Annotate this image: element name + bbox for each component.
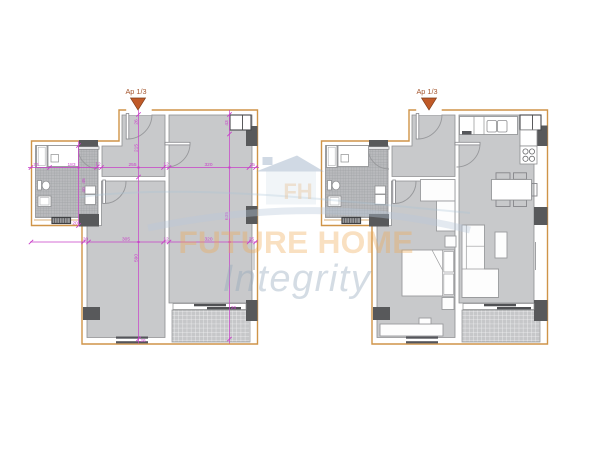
svg-text:26: 26 [133, 119, 139, 125]
svg-text:Ap 1/3: Ap 1/3 [416, 87, 437, 96]
svg-text:215: 215 [133, 144, 139, 152]
svg-text:43: 43 [224, 120, 230, 126]
svg-text:Integrity: Integrity [223, 258, 372, 300]
svg-text:255: 255 [128, 162, 136, 168]
svg-text:40: 40 [81, 187, 87, 193]
svg-text:FH: FH [283, 179, 312, 204]
svg-text:45: 45 [81, 178, 87, 184]
svg-text:26: 26 [231, 305, 237, 311]
svg-text:12: 12 [163, 236, 169, 242]
svg-text:305: 305 [122, 236, 130, 242]
svg-text:320: 320 [204, 162, 212, 168]
svg-text:FUTURE HOME: FUTURE HOME [178, 224, 413, 260]
svg-text:12: 12 [95, 161, 101, 167]
svg-text:73: 73 [33, 162, 39, 168]
svg-text:20: 20 [83, 236, 89, 242]
svg-text:20: 20 [72, 221, 78, 227]
svg-text:12: 12 [163, 161, 169, 167]
svg-text:590: 590 [133, 254, 139, 262]
svg-text:25: 25 [250, 162, 256, 168]
svg-text:183: 183 [67, 162, 75, 168]
svg-text:Ap 1/3: Ap 1/3 [125, 87, 146, 96]
svg-text:26: 26 [140, 338, 146, 344]
